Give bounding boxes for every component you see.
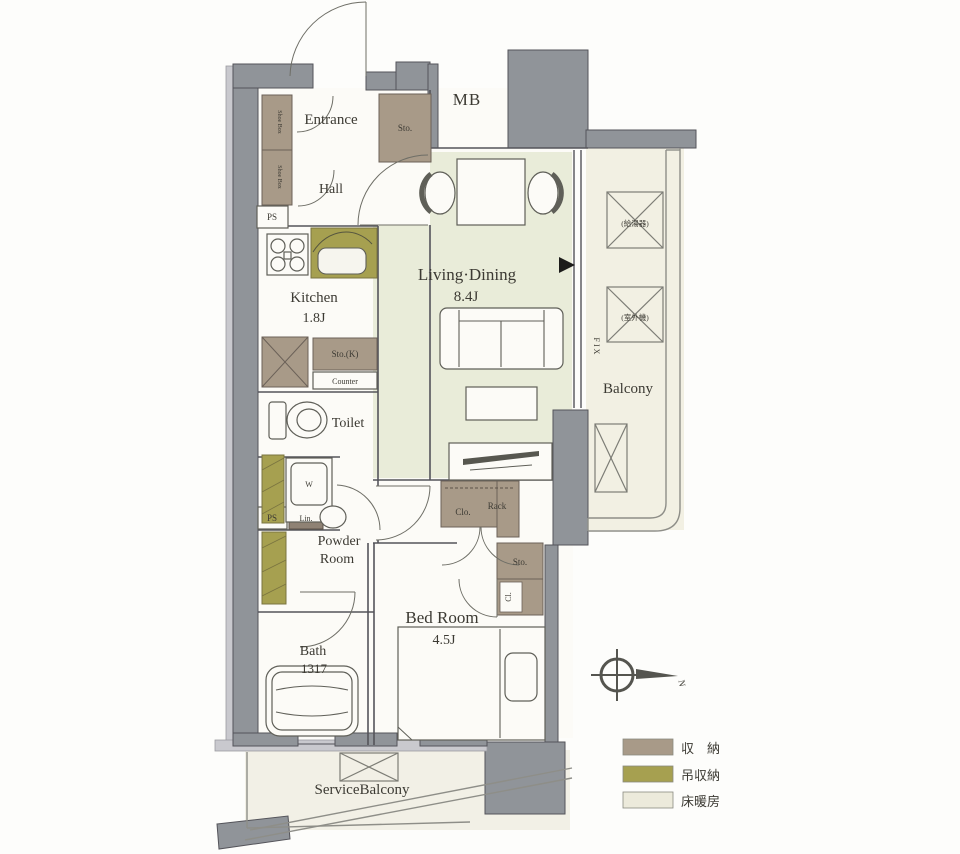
stove (267, 234, 308, 275)
top-right-block (508, 50, 588, 148)
coffee-table (466, 387, 537, 420)
linen-label: Lin. (299, 514, 312, 523)
bedroom-right-wall (545, 545, 558, 745)
shoe-box-1-label: Shoe Box (276, 110, 282, 134)
service-balcony-label: ServiceBalcony (315, 782, 410, 798)
compass: N (591, 649, 688, 701)
legend-label-hanging-storage: 吊収納 (681, 768, 720, 783)
closet-label: Clo. (455, 507, 470, 517)
toilet-fixture (269, 402, 327, 439)
entrance-label: Entrance (304, 112, 358, 128)
kitchen-storage-label: Sto.(K) (332, 349, 359, 359)
kitchen-size-label: 1.8J (303, 311, 327, 326)
bedroom-cl-label: Cl. (504, 592, 513, 602)
north-label: N (677, 679, 688, 688)
bedroom-label: Bed Room (405, 608, 478, 627)
dining-chair-right (528, 172, 561, 214)
living-dining-size-label: 8.4J (454, 289, 479, 305)
powder-room-label-1: Powder (318, 534, 361, 549)
tv-board (449, 443, 552, 480)
legend-swatch-hanging-storage (623, 766, 673, 782)
balcony-label: Balcony (603, 381, 653, 397)
dining-table (457, 159, 525, 225)
bottom-left-bar (217, 816, 290, 849)
washer-label: W (305, 480, 313, 489)
bedroom-storage-label: Sto. (513, 557, 527, 567)
kitchen-fixtures (267, 228, 377, 278)
pillow (505, 653, 537, 701)
hall-label: Hall (319, 182, 343, 197)
balcony-top-band (586, 130, 696, 148)
top-wall-left (233, 64, 313, 88)
legend: 収 納 吊収納 床暖房 (623, 739, 720, 809)
bed (398, 627, 545, 740)
entrance-storage-label: Sto. (398, 123, 412, 133)
bedroom-size-label: 4.5J (433, 633, 457, 648)
legend-swatch-storage (623, 739, 673, 755)
legend-swatch-floor-heating (623, 792, 673, 808)
dining-chair-left (422, 172, 455, 214)
kitchen-sink (311, 228, 377, 278)
counter-label: Counter (332, 377, 358, 386)
bedroom-furniture (398, 627, 545, 740)
shoe-box-2-label: Shoe Box (276, 165, 282, 189)
ps-top-label: PS (267, 212, 277, 222)
floor-plan-drawing: N 収 納 吊収納 床暖房 Entrance Hall MB Kitchen 1… (0, 0, 960, 854)
kitchen-label: Kitchen (290, 290, 338, 306)
left-exterior-wall (233, 64, 258, 746)
legend-label-storage: 収 納 (681, 741, 720, 756)
bathtub (266, 666, 358, 736)
toilet-label: Toilet (332, 416, 365, 431)
bottom-right-block (485, 742, 565, 814)
ps-bottom-label: PS (267, 513, 277, 523)
bath-size-label: 1317 (301, 661, 328, 676)
hanging-storage-powder (262, 532, 286, 604)
legend-label-floor-heating: 床暖房 (681, 794, 720, 809)
water-heater-label: (給湯器) (621, 218, 649, 228)
north-arrow (636, 669, 678, 679)
ac-unit-label: (室外機) (621, 312, 649, 322)
bath-label: Bath (300, 644, 326, 659)
powder-sink (320, 506, 346, 528)
floor-plan-page: N 収 納 吊収納 床暖房 Entrance Hall MB Kitchen 1… (0, 0, 960, 854)
mb-label: MB (453, 90, 481, 109)
sofa (440, 308, 563, 369)
right-mid-block (553, 410, 588, 545)
fix-window-label: FIX (592, 338, 601, 357)
refrigerator-space (262, 337, 308, 387)
entrance-pillar (396, 62, 430, 90)
rack-label: Rack (488, 501, 507, 511)
powder-room-label-2: Room (320, 552, 354, 567)
living-dining-label: Living·Dining (418, 265, 517, 284)
